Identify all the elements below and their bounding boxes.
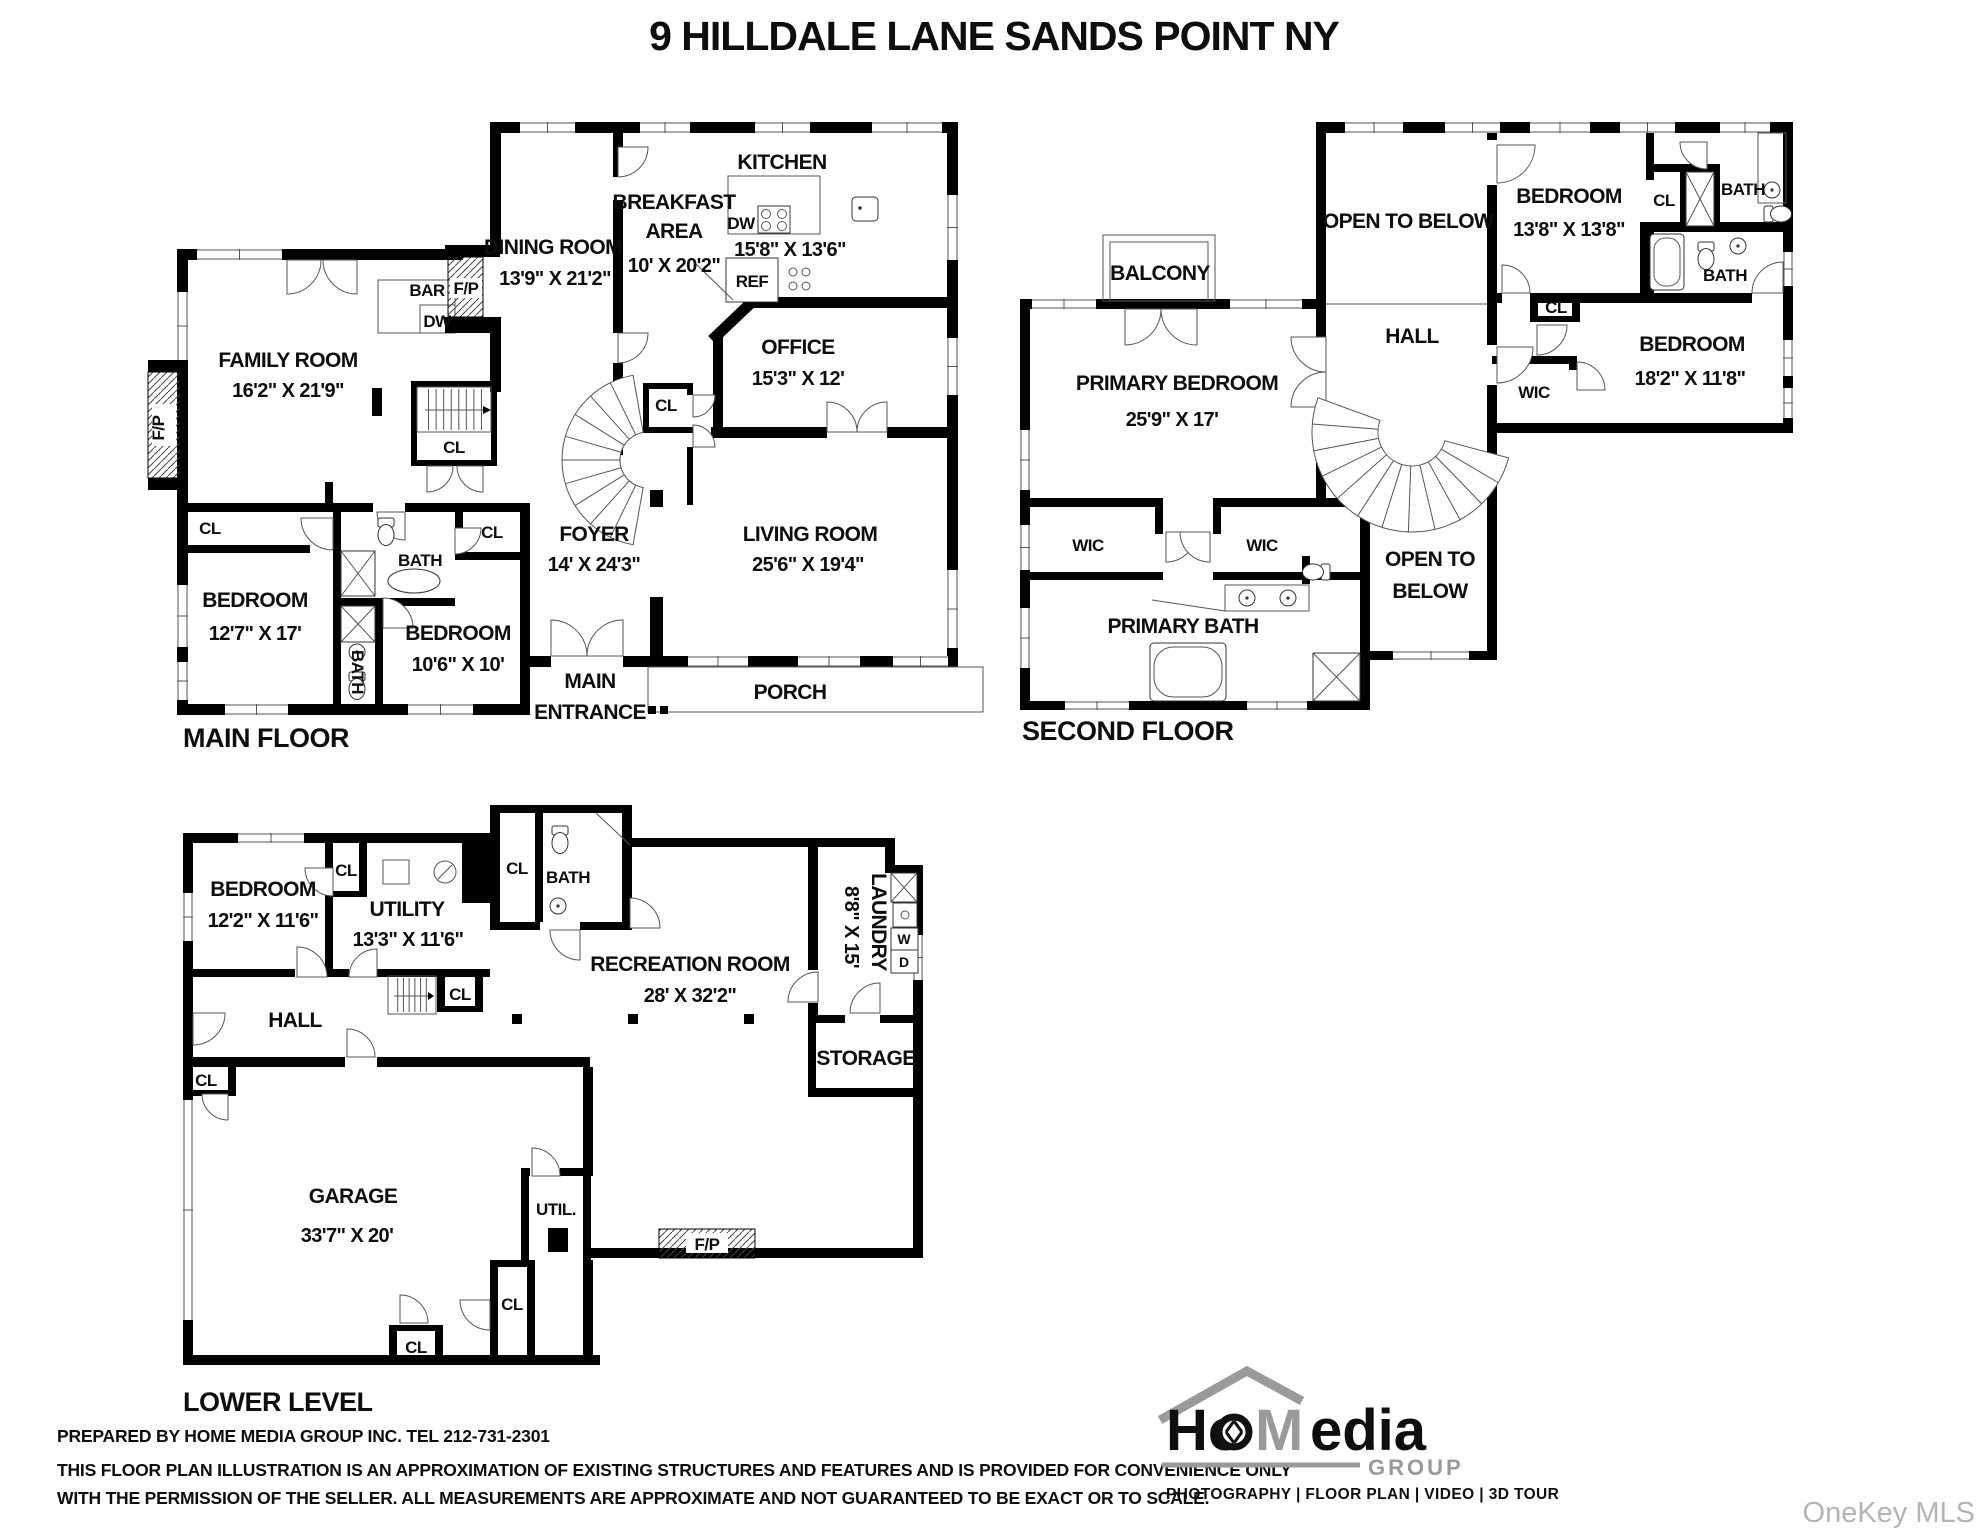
closet-label: CL [199, 519, 221, 538]
door-swing-icon [1752, 262, 1783, 293]
walk-in-closet-label: WIC [1246, 536, 1278, 555]
door-swing-icon [1161, 309, 1197, 345]
walk-in-closet-label: WIC [1518, 383, 1550, 402]
lower-level-title: LOWER LEVEL [183, 1387, 373, 1417]
toilet-icon [1303, 564, 1331, 580]
logo-text-edia: edia [1310, 1398, 1427, 1463]
door-swing-icon [532, 1148, 560, 1176]
floor-plan-drawing: 9 HILLDALE LANE SANDS POINT NY [0, 0, 1988, 1536]
door-swing-icon [630, 898, 660, 928]
closet-label: CL [195, 1071, 217, 1090]
page-title: 9 HILLDALE LANE SANDS POINT NY [649, 13, 1339, 59]
office-label: OFFICE [761, 336, 835, 359]
toilet-icon [1764, 206, 1792, 222]
window-icon [1032, 299, 1096, 309]
living-room-dims: 25'6" X 19'4" [752, 554, 864, 576]
bedroom-label: BEDROOM [210, 878, 316, 901]
laundry-label: LAUNDRY [867, 873, 890, 971]
window-icon [1345, 122, 1403, 133]
window-icon [798, 656, 860, 667]
window-icon [947, 338, 958, 395]
recreation-room-label: RECREATION ROOM [590, 953, 790, 976]
door-swing-icon [460, 1300, 490, 1330]
utility-closet-label: UTIL. [536, 1200, 576, 1219]
bathtub-icon [1150, 643, 1226, 701]
second-floor-plan: BALCONY OPEN TO BELOW PRIMARY BEDROOM 25… [1020, 122, 1793, 746]
laundry-dims: 8'8" X 15' [840, 886, 862, 968]
primary-bedroom-dims: 25'9" X 17' [1126, 409, 1218, 431]
window-icon [1020, 608, 1030, 668]
dishwasher-label: DW [423, 312, 452, 331]
window-icon [238, 833, 304, 843]
bedroom-label: BEDROOM [1639, 333, 1745, 356]
garage-label: GARAGE [309, 1185, 398, 1208]
main-entrance-label2: ENTRANCE [534, 701, 646, 724]
window-icon [1065, 701, 1129, 710]
window-icon [1620, 122, 1675, 133]
door-swing-icon [349, 949, 377, 977]
dining-room-dims: 13'9" X 21'2" [499, 268, 611, 290]
logo-group-label: GROUP [1368, 1455, 1464, 1480]
footer-disclaimer-2: WITH THE PERMISSION OF THE SELLER. ALL M… [57, 1488, 1209, 1508]
bedroom-dims: 12'7" X 17' [209, 623, 301, 645]
window-icon [177, 292, 188, 360]
washer-label: W [897, 931, 911, 947]
bath-sink-icon [1239, 590, 1255, 606]
window-icon [1783, 340, 1793, 376]
dining-room-label: DINING ROOM [484, 236, 622, 259]
door-swing-icon [457, 466, 483, 492]
door-swing-icon [347, 1029, 375, 1057]
closet-label: CL [506, 859, 528, 878]
bath-label: BATH [348, 650, 367, 694]
window-icon [1783, 388, 1793, 418]
bedroom-dims: 18'2" X 11'8" [1635, 368, 1746, 390]
door-swing-icon [551, 620, 587, 656]
family-room-dims: 16'2" X 21'9" [232, 380, 344, 402]
floor-plan-page: 9 HILLDALE LANE SANDS POINT NY [0, 0, 1988, 1536]
hall-label: HALL [268, 1009, 322, 1032]
bath-sink-icon [388, 569, 440, 593]
bedroom-label: BEDROOM [202, 589, 308, 612]
window-icon [640, 122, 690, 133]
door-swing-icon [1291, 337, 1326, 372]
staircase-icon [398, 978, 427, 1012]
bath-sink-icon [1280, 590, 1296, 606]
bath-label: BATH [398, 551, 442, 570]
closet-label: CL [335, 861, 357, 880]
window-icon [755, 122, 810, 133]
office-dims: 15'3" X 12' [752, 368, 844, 390]
lower-level-plan: BEDROOM 12'2" X 11'6" CL UTILITY 13'3" X… [183, 805, 923, 1417]
door-swing-icon [550, 930, 580, 960]
window-icon [1230, 299, 1302, 309]
window-icon [177, 662, 188, 700]
logo-tagline: PHOTOGRAPHY | FLOOR PLAN | VIDEO | 3D TO… [1166, 1486, 1559, 1503]
door-swing-icon [427, 466, 453, 492]
curved-staircase-icon [1312, 398, 1509, 532]
door-swing-icon [455, 528, 481, 554]
garage-door-icon [183, 1100, 193, 1320]
window-icon [1247, 701, 1307, 710]
window-icon [183, 893, 193, 941]
door-swing-icon [193, 1013, 225, 1045]
door-swing-icon [202, 1094, 228, 1120]
bath-label: BATH [546, 868, 590, 887]
window-icon [1530, 122, 1590, 133]
bath-sink-icon [550, 898, 566, 914]
door-swing-icon [323, 260, 357, 294]
closet-label: CL [655, 396, 677, 415]
window-icon [225, 704, 288, 715]
utility-sink-icon [893, 903, 917, 927]
footer-prepared-by: PREPARED BY HOME MEDIA GROUP INC. TEL 21… [57, 1426, 550, 1446]
window-icon [1720, 122, 1770, 133]
bar-label: BAR [409, 281, 445, 300]
curved-staircase-icon [562, 375, 643, 544]
door-swing-icon [297, 947, 327, 977]
family-room-label: FAMILY ROOM [218, 349, 357, 372]
bedroom-dims: 10'6" X 10' [412, 654, 504, 676]
mls-watermark: OneKey MLS [1803, 1497, 1975, 1529]
porch-label: PORCH [754, 681, 827, 704]
utility-dims: 13'3" X 11'6" [353, 929, 464, 951]
breakfast-area-dims: 10' X 20'2" [628, 255, 721, 277]
door-swing-icon [587, 620, 623, 656]
foyer-dims: 14' X 24'3" [548, 554, 641, 576]
window-icon [197, 249, 282, 260]
lower-level-doors [193, 868, 880, 1330]
dryer-label: D [899, 954, 909, 970]
door-swing-icon [1537, 325, 1567, 355]
footer: PREPARED BY HOME MEDIA GROUP INC. TEL 21… [57, 1426, 1292, 1508]
laundry-sink-icon [891, 873, 917, 902]
lower-level-labels: BEDROOM 12'2" X 11'6" CL UTILITY 13'3" X… [183, 859, 916, 1417]
window-icon [688, 656, 748, 667]
door-swing-icon [788, 972, 818, 1002]
window-icon [947, 570, 958, 648]
foyer-label: FOYER [559, 523, 629, 546]
door-swing-icon [1497, 347, 1533, 383]
homedia-logo: Ho M edia GROUP PHOTOGRAPHY | FLOOR PLAN… [1160, 1371, 1559, 1503]
door-swing-icon [287, 260, 321, 294]
primary-bath-label: PRIMARY BATH [1107, 615, 1258, 638]
closet-label: CL [1653, 191, 1675, 210]
fireplace-label: F/P [149, 415, 168, 440]
window-icon [1020, 430, 1030, 490]
window-icon [947, 195, 958, 260]
walk-in-closet-label: WIC [1072, 536, 1104, 555]
balcony-label: BALCONY [1110, 262, 1210, 285]
refrigerator-label: REF [736, 272, 769, 291]
recreation-room-dims: 28' X 32'2" [644, 985, 737, 1007]
bathtub-icon [1650, 234, 1684, 290]
door-swing-icon [618, 147, 648, 177]
second-floor-title: SECOND FLOOR [1022, 716, 1234, 746]
door-swing-icon [1497, 145, 1535, 183]
window-icon [520, 122, 575, 133]
closet-label: CL [501, 1295, 523, 1314]
bedroom-dims: 13'8" X 13'8" [1513, 219, 1625, 241]
primary-bedroom-label: PRIMARY BEDROOM [1076, 372, 1278, 395]
window-icon [1393, 651, 1469, 660]
closet-label: CL [405, 1338, 427, 1357]
toilet-icon [378, 518, 394, 546]
door-swing-icon [1180, 532, 1210, 562]
closet-label: CL [481, 523, 503, 542]
kitchen-label: KITCHEN [737, 151, 826, 174]
breakfast-area-label: BREAKFAST [613, 191, 737, 214]
lower-level-stairs [388, 976, 436, 1014]
fireplace-label: F/P [454, 279, 479, 298]
bath-label: BATH [1721, 180, 1765, 199]
window-icon [177, 585, 188, 647]
main-entrance-label: MAIN [564, 670, 615, 693]
window-icon [872, 122, 942, 133]
utility-label: UTILITY [369, 898, 445, 921]
door-swing-icon [827, 402, 857, 432]
kitchen-dims: 15'8" X 13'6" [734, 239, 846, 261]
garage-dims: 33'7" X 20' [301, 1225, 393, 1247]
window-icon [893, 656, 948, 667]
door-swing-icon [693, 395, 715, 417]
living-room-label: LIVING ROOM [743, 523, 878, 546]
closet-label: CL [449, 985, 471, 1004]
logo-text-m: M [1255, 1398, 1303, 1463]
window-icon [1445, 122, 1500, 133]
main-floor-plan: FAMILY ROOM 16'2" X 21'9" DINING ROOM 13… [148, 122, 983, 753]
open-to-below-label: OPEN TO BELOW [1323, 210, 1494, 233]
shower-icon [341, 551, 375, 596]
window-icon [408, 704, 473, 715]
hall-label: HALL [1385, 325, 1439, 348]
bedroom-dims: 12'2" X 11'6" [208, 910, 319, 932]
open-to-below-label: OPEN TO [1385, 548, 1475, 571]
bath-label: BATH [1703, 266, 1747, 285]
bedroom-label: BEDROOM [405, 622, 511, 645]
closet-label: CL [443, 438, 465, 457]
door-swing-icon [618, 333, 648, 363]
closet-label: CL [1545, 298, 1567, 317]
door-swing-icon [1502, 265, 1530, 293]
breakfast-area-label2: AREA [645, 220, 703, 243]
door-swing-icon [850, 983, 880, 1013]
door-swing-icon [1125, 309, 1161, 345]
shower-icon [1313, 653, 1360, 701]
camera-aperture-icon [1219, 1417, 1249, 1447]
door-swing-icon [400, 1295, 428, 1323]
bath-sink-icon [1764, 182, 1780, 198]
shower-icon [341, 606, 375, 642]
kitchen-sink-icon [852, 197, 878, 221]
door-swing-icon [857, 402, 887, 432]
window-icon [1783, 252, 1793, 286]
storage-label: STORAGE [816, 1047, 916, 1070]
shower-icon [1686, 172, 1714, 226]
bath-sink-icon [1730, 238, 1746, 254]
toilet-icon [552, 826, 568, 854]
door-swing-icon [1577, 362, 1605, 390]
fireplace-label: F/P [695, 1235, 720, 1254]
open-to-below-label2: BELOW [1392, 580, 1468, 603]
bedroom-label: BEDROOM [1516, 185, 1622, 208]
footer-disclaimer-1: THIS FLOOR PLAN ILLUSTRATION IS AN APPRO… [57, 1460, 1292, 1480]
dishwasher-label: DW [727, 214, 756, 233]
window-icon [1020, 525, 1030, 570]
main-floor-title: MAIN FLOOR [183, 723, 349, 753]
